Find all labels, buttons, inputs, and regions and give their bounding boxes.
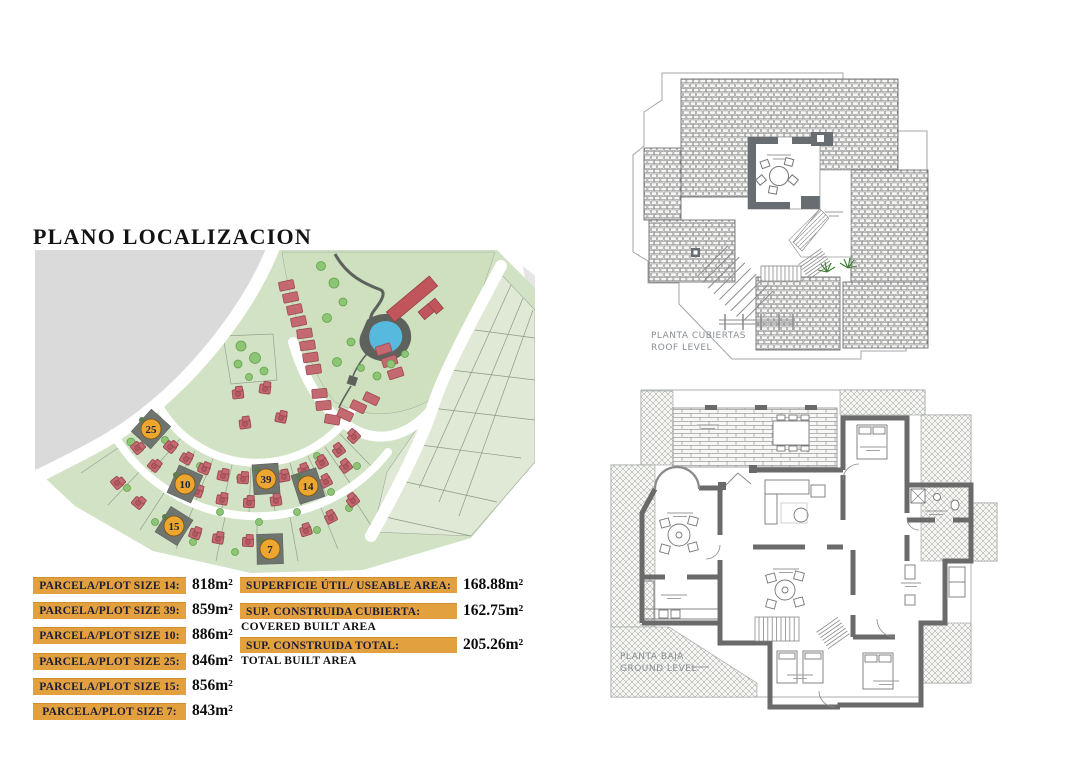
plot-size-value: 859m² xyxy=(192,602,233,617)
ground-floor-plan-drawing: PLANTA BAJA GROUND LEVEL xyxy=(605,385,1005,735)
table-row: PARCELA/PLOT SIZE 7: 843m² xyxy=(33,703,233,720)
plot-badge-25: 25 xyxy=(141,419,161,439)
plot-badge-label: 15 xyxy=(169,521,181,533)
terrace-window xyxy=(817,135,824,142)
table-row: PARCELA/PLOT SIZE 15: 856m² xyxy=(33,678,233,695)
table-row: SUP. CONSTRUIDA CUBIERTA: 162.75m² COVER… xyxy=(240,603,523,633)
plot-size-label: PARCELA/PLOT SIZE 39: xyxy=(33,602,186,619)
plot-badge-label: 7 xyxy=(267,544,273,556)
plot-badge-label: 39 xyxy=(261,474,273,486)
plot-size-value: 843m² xyxy=(192,703,233,718)
area-label: SUPERFICIE ÚTIL/ USEABLE AREA: xyxy=(240,577,457,593)
page-title: PLANO LOCALIZACION xyxy=(33,224,312,250)
plot-badge-10: 10 xyxy=(175,474,195,494)
chimney-flue xyxy=(694,251,698,255)
plot-size-value: 818m² xyxy=(192,577,233,592)
plot-size-value: 886m² xyxy=(192,627,233,642)
area-label: SUP. CONSTRUIDA TOTAL: xyxy=(240,637,457,653)
ground-plan-label-1: PLANTA BAJA xyxy=(620,652,684,662)
plot-badge-label: 14 xyxy=(303,481,315,493)
roof-plan-label-2: ROOF LEVEL xyxy=(651,343,712,353)
area-value: 205.26m² xyxy=(463,637,523,652)
plot-badge-label: 10 xyxy=(180,479,192,491)
table-row: PARCELA/PLOT SIZE 10: 886m² xyxy=(33,627,233,644)
area-label: SUP. CONSTRUIDA CUBIERTA: xyxy=(240,603,457,619)
site-location-map: 25 10 39 14 15 7 xyxy=(35,250,535,575)
ground-plan-label-2: GROUND LEVEL xyxy=(620,664,697,674)
table-row: SUP. CONSTRUIDA TOTAL: 205.26m² TOTAL BU… xyxy=(240,637,523,667)
plot-badge-15: 15 xyxy=(164,516,184,536)
plot-size-value: 846m² xyxy=(192,653,233,668)
roof-plan-label-1: PLANTA CUBIERTAS xyxy=(651,331,746,341)
area-value: 168.88m² xyxy=(463,577,523,592)
plot-size-table: PARCELA/PLOT SIZE 14: 818m² PARCELA/PLOT… xyxy=(33,577,233,728)
brochure-page: PLANO LOCALIZACION xyxy=(0,0,1065,777)
plot-badge-39: 39 xyxy=(256,469,276,489)
area-sublabel: COVERED BUILT AREA xyxy=(241,621,523,633)
plot-size-label: PARCELA/PLOT SIZE 14: xyxy=(33,577,186,594)
table-row: PARCELA/PLOT SIZE 14: 818m² xyxy=(33,577,233,594)
plot-badge-14: 14 xyxy=(298,476,318,496)
terrace-dining-set xyxy=(773,415,809,451)
area-sublabel: TOTAL BUILT AREA xyxy=(241,655,523,667)
area-summary-table: SUPERFICIE ÚTIL/ USEABLE AREA: 168.88m² … xyxy=(240,577,523,671)
plot-size-label: PARCELA/PLOT SIZE 10: xyxy=(33,627,186,644)
table-row: PARCELA/PLOT SIZE 25: 846m² xyxy=(33,653,233,670)
plot-size-label: PARCELA/PLOT SIZE 7: xyxy=(33,703,186,720)
plot-size-label: PARCELA/PLOT SIZE 25: xyxy=(33,653,186,670)
table-row: SUPERFICIE ÚTIL/ USEABLE AREA: 168.88m² xyxy=(240,577,523,593)
table-row: PARCELA/PLOT SIZE 39: 859m² xyxy=(33,602,233,619)
area-value: 162.75m² xyxy=(463,603,523,618)
plot-badge-label: 25 xyxy=(146,424,158,436)
plot-size-value: 856m² xyxy=(192,678,233,693)
plot-badge-7: 7 xyxy=(260,539,280,559)
plot-size-label: PARCELA/PLOT SIZE 15: xyxy=(33,678,186,695)
roof-plan-drawing: PLANTA CUBIERTAS ROOF LEVEL xyxy=(615,52,965,362)
brick-terrace xyxy=(673,408,837,467)
